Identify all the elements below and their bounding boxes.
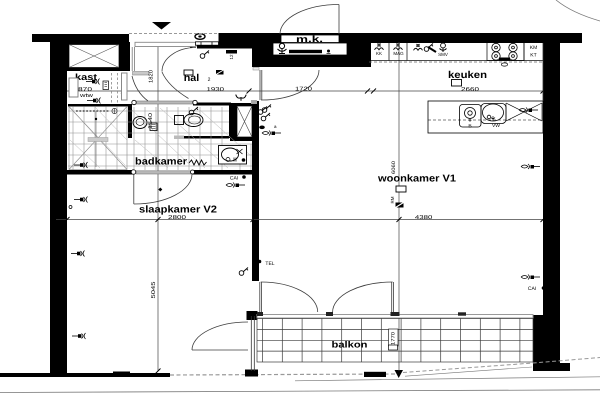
svg-text:CAI: CAI <box>230 176 238 182</box>
svg-text:4380: 4380 <box>415 215 433 221</box>
svg-text:VW: VW <box>492 123 500 129</box>
svg-text:TEL: TEL <box>265 261 274 267</box>
svg-text:1770: 1770 <box>391 332 397 345</box>
svg-text:m.k.: m.k. <box>296 34 323 44</box>
svg-text:1720: 1720 <box>295 87 312 93</box>
svg-text:badkamer: badkamer <box>135 157 187 168</box>
svg-text:RM: RM <box>390 196 395 203</box>
svg-text:KM: KM <box>530 45 538 51</box>
svg-text:2660: 2660 <box>461 87 479 93</box>
svg-text:wtw: wtw <box>79 93 93 99</box>
svg-text:2: 2 <box>208 77 211 83</box>
svg-text:MAG: MAG <box>393 51 404 56</box>
svg-text:6060: 6060 <box>391 161 397 174</box>
svg-text:KK: KK <box>376 51 382 56</box>
svg-text:1820: 1820 <box>149 70 155 83</box>
svg-text:1930: 1930 <box>207 87 225 93</box>
svg-text:woonkamer V1: woonkamer V1 <box>377 174 457 185</box>
svg-text:CAI: CAI <box>528 286 536 292</box>
svg-text:KT: KT <box>530 53 536 59</box>
svg-text:balkon: balkon <box>332 340 368 350</box>
svg-text:SMV: SMV <box>438 52 448 57</box>
svg-text:5045: 5045 <box>151 282 157 299</box>
svg-text:12: 12 <box>229 54 234 60</box>
svg-text:2800: 2800 <box>168 215 186 221</box>
